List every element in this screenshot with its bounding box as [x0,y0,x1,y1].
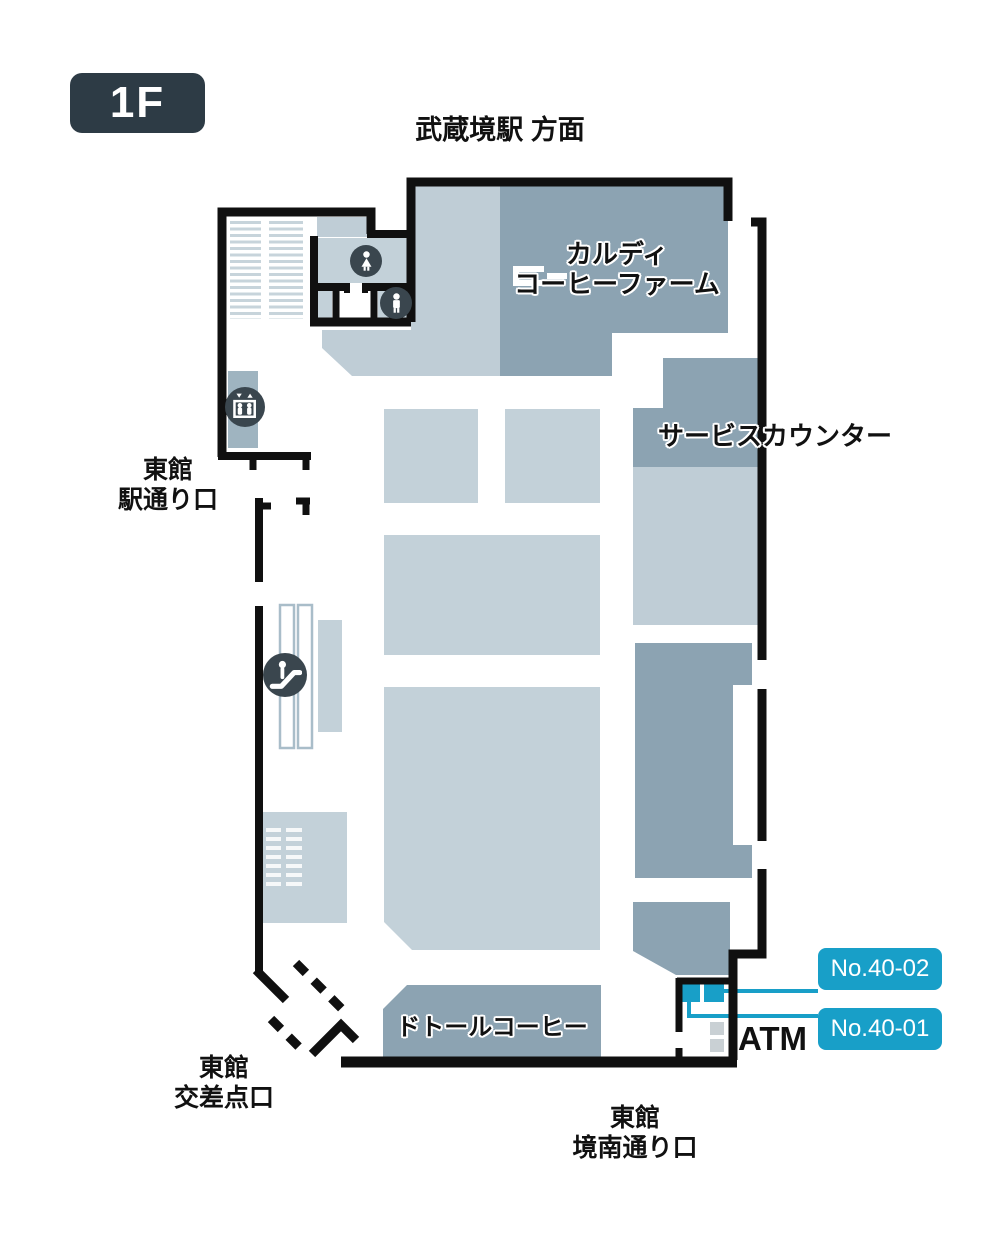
fixture-block-1 [384,409,478,503]
fixture-block-2 [505,409,600,503]
upper-walkway-band [317,217,373,237]
atm-machine-2 [710,1039,724,1052]
direction-label-station-side: 武蔵境駅 方面 [350,108,650,147]
exit-kyonan-line2: 境南通り口 [558,1133,712,1163]
unit-badge-40-02-label: No.40-02 [831,955,930,983]
kaldi-label: カルディ コーヒーファーム [497,239,737,299]
floor-badge-label: 1F [110,78,165,128]
unit-40-02-square [680,984,700,1002]
kaldi-label-line1: カルディ [497,239,737,269]
escalator-side-block [318,620,342,732]
fixture-block-3 [384,535,600,655]
exit-station-line2: 駅通り口 [106,485,230,515]
service-counter-label: サービスカウンター [658,416,892,453]
atm-label: ATM [738,1020,807,1058]
stairs-hatch-right [269,221,303,319]
exit-label-station: 東館 駅通り口 [106,455,230,515]
escalator-icon [263,653,307,697]
atm-corner-area [633,902,730,975]
exit-label-intersection: 東館 交差点口 [162,1053,286,1113]
kaldi-label-line2: コーヒーファーム [497,269,737,299]
doutor-label: ドトールコーヒー [372,1007,612,1042]
floor-plan-drawing [0,0,1008,1260]
floor-badge: 1F [70,73,205,133]
kaldi-area-light [411,181,500,376]
exit-intersection-line1: 東館 [162,1053,286,1083]
men-restroom-icon [380,287,412,319]
women-restroom-icon [350,245,382,277]
unit-badge-40-02: No.40-02 [818,948,942,990]
restroom-side-strip [318,291,332,318]
exit-intersection-line2: 交差点口 [162,1083,286,1113]
fixture-block-4 [384,687,600,950]
exit-kyonan-line1: 東館 [558,1103,712,1133]
shelf-hatch-left [266,828,281,890]
unit-badge-40-01: No.40-01 [818,1008,942,1050]
right-dark-area [635,643,752,878]
atm-machine-1 [710,1022,724,1035]
shelf-hatch-right [286,828,302,890]
walkway-light-area [322,330,411,376]
exit-label-kyonan: 東館 境南通り口 [558,1103,712,1163]
elevator-icon [225,387,265,427]
right-light-area [633,467,758,625]
unit-40-01-connector [689,1000,818,1016]
exit-station-line1: 東館 [106,455,230,485]
unit-badge-40-01-label: No.40-01 [831,1015,930,1043]
stairs-hatch-left [230,221,261,319]
floor-map-1f: 1F 武蔵境駅 方面 カルディ コーヒーファーム サービスカウンター ドトールコ… [0,0,1008,1260]
